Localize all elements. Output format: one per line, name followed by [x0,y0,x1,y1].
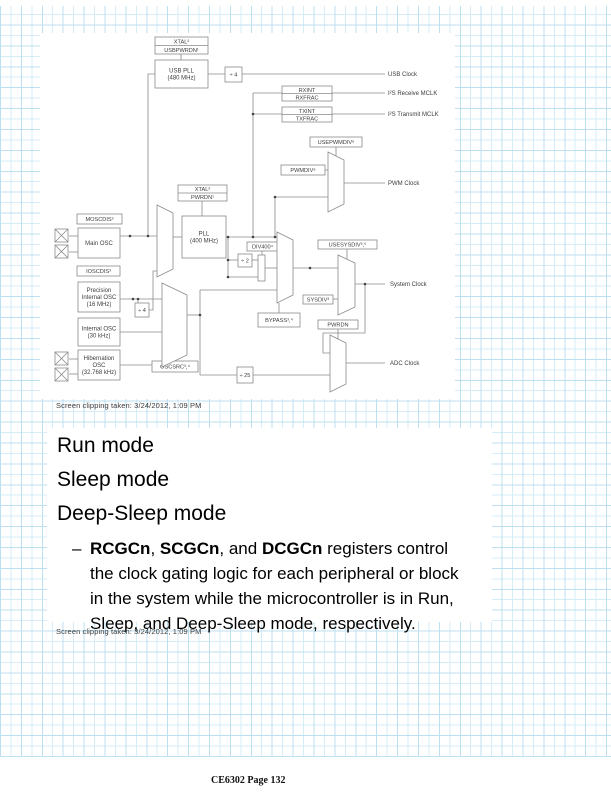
clock-diagram-svg: XTAL²USBPWRDN¹USB PLL(480 MHz)÷ 4RXINTRX… [40,33,455,399]
svg-text:USB PLL: USB PLL [169,68,194,74]
svg-text:(32.768 kHz): (32.768 kHz) [82,370,116,376]
output-label-pwm-clock: PWM Clock [388,181,420,187]
svg-text:Internal OSC: Internal OSC [82,326,117,332]
svg-text:USESYSDIV³,⁵: USESYSDIV³,⁵ [329,242,367,249]
junction-dot [227,276,230,279]
note-heading-run-mode[interactable]: Run mode [57,434,484,458]
svg-text:Precision: Precision [87,288,112,294]
junction-dot [274,196,277,199]
svg-text:RXFRAC: RXFRAC [296,95,319,101]
svg-text:Internal OSC: Internal OSC [82,295,117,301]
screen-clipping-clock-diagram[interactable]: XTAL²USBPWRDN¹USB PLL(480 MHz)÷ 4RXINTRX… [40,33,455,399]
svg-text:Hibernation: Hibernation [84,356,115,362]
svg-text:USEPWMDIV⁶: USEPWMDIV⁶ [318,139,355,146]
svg-text:XTAL²: XTAL² [174,39,190,45]
svg-text:PLL: PLL [199,231,210,237]
junction-dot [309,267,312,270]
svg-text:(16 MHz): (16 MHz) [87,302,112,308]
svg-text:DIV400⁴: DIV400⁴ [252,244,274,251]
junction-dot [274,236,277,239]
svg-text:XTAL²: XTAL² [195,187,211,193]
output-label-usb-clock: USB Clock [388,72,418,78]
junction-dot [252,113,255,116]
output-label-system-clock: System Clock [390,282,428,288]
junction-dot [227,259,230,262]
bullet-text: RCGCn, SCGCn, and DCGCn registers contro… [90,536,484,636]
svg-text:÷ 4: ÷ 4 [230,73,238,79]
junction-dot [252,236,255,239]
osc-src-mux [162,283,187,367]
svg-text:SYSDIV³: SYSDIV³ [307,298,330,304]
output-label-i2s-transmit-mclk: I²S Transmit MCLK [388,112,439,118]
svg-text:Main OSC: Main OSC [85,241,113,247]
svg-text:MOSCDIS³: MOSCDIS³ [86,217,114,223]
junction-dot [132,298,135,301]
wire [148,74,155,236]
svg-text:IOSCDIS³: IOSCDIS³ [86,269,111,275]
output-label-i2s-receive-mclk: I²S Receive MCLK [388,91,437,97]
screen-clipping-caption-2: Screen clipping taken: 3/24/2012, 1:09 P… [56,627,201,636]
junction-dot [364,283,367,286]
junction-dot [137,298,140,301]
notes-block[interactable]: Run mode Sleep mode Deep-Sleep mode – RC… [47,428,492,622]
svg-text:OSC: OSC [92,363,106,369]
svg-text:(480 MHz): (480 MHz) [167,76,195,82]
svg-text:BYPASS³,⁴: BYPASS³,⁴ [265,317,293,324]
junction-dot [227,236,230,239]
note-bullet-registers[interactable]: – RCGCn, SCGCn, and DCGCn registers cont… [57,536,484,636]
svg-text:TXFRAC: TXFRAC [296,116,318,122]
svg-text:RXINT: RXINT [299,88,316,94]
pwm-mux [328,152,344,212]
page-footer: CE6302 Page 132 [211,775,285,786]
screen-clipping-caption-1: Screen clipping taken: 3/24/2012, 1:09 P… [56,401,201,410]
svg-text:÷ 25: ÷ 25 [240,373,251,379]
adc-mux [330,335,346,392]
div-sel-mux [277,232,293,303]
note-heading-sleep-mode[interactable]: Sleep mode [57,468,484,492]
sysclk-mux [338,255,355,315]
pll-src-mux [157,205,173,277]
svg-text:(30 kHz): (30 kHz) [88,334,111,340]
svg-text:PWMDIV⁶: PWMDIV⁶ [290,167,315,174]
note-heading-deep-sleep-mode[interactable]: Deep-Sleep mode [57,502,484,526]
svg-text:PWRDN¹: PWRDN¹ [191,195,214,201]
junction-dot [147,235,150,238]
bullet-dash: – [72,536,81,561]
junction-dot [199,314,202,317]
svg-text:÷ 2: ÷ 2 [241,259,249,265]
output-label-adc-clock: ADC Clock [390,361,420,367]
svg-text:(400 MHz): (400 MHz) [190,239,218,245]
svg-text:PWRDN: PWRDN [327,323,348,329]
divsel-rect [258,255,265,281]
wire [149,271,157,310]
junction-dot [129,235,132,238]
svg-text:USBPWRDN¹: USBPWRDN¹ [164,48,199,54]
svg-text:÷ 4: ÷ 4 [138,308,146,314]
svg-text:TXINT: TXINT [299,109,316,115]
onenote-page: { "colors": { "grid_light": "#d7ecf9", "… [0,0,611,792]
